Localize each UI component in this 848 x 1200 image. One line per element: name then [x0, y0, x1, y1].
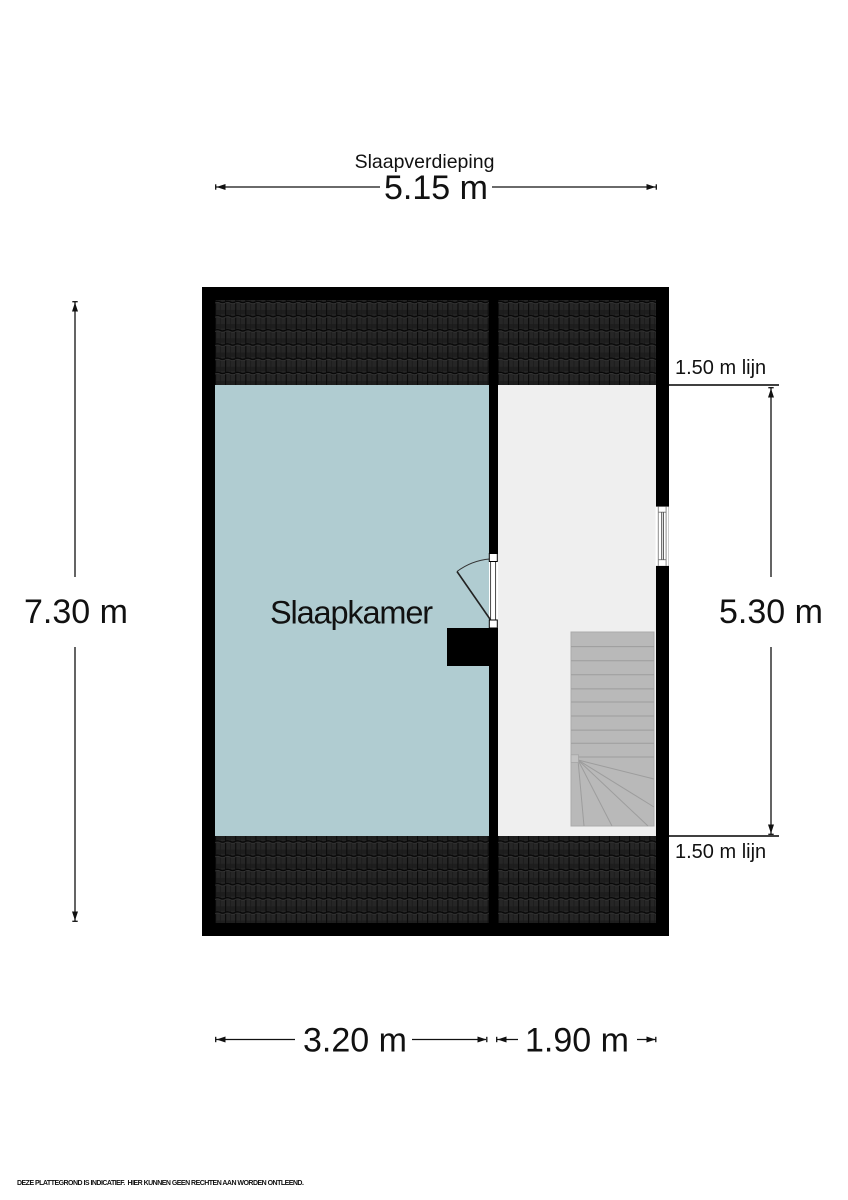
svg-text:1.50 m lijn: 1.50 m lijn: [675, 357, 766, 379]
svg-text:1.90 m: 1.90 m: [525, 1022, 629, 1060]
svg-text:1.50 m lijn: 1.50 m lijn: [675, 841, 766, 863]
svg-text:DEZE PLATTEGROND IS INDICATIEF: DEZE PLATTEGROND IS INDICATIEF. HIER KUN…: [17, 1180, 304, 1187]
svg-text:7.30 m: 7.30 m: [24, 593, 128, 631]
svg-text:5.15 m: 5.15 m: [384, 169, 488, 207]
svg-text:3.20 m: 3.20 m: [303, 1022, 407, 1060]
svg-text:5.30 m: 5.30 m: [719, 593, 823, 631]
svg-text:Slaapkamer: Slaapkamer: [270, 595, 433, 631]
